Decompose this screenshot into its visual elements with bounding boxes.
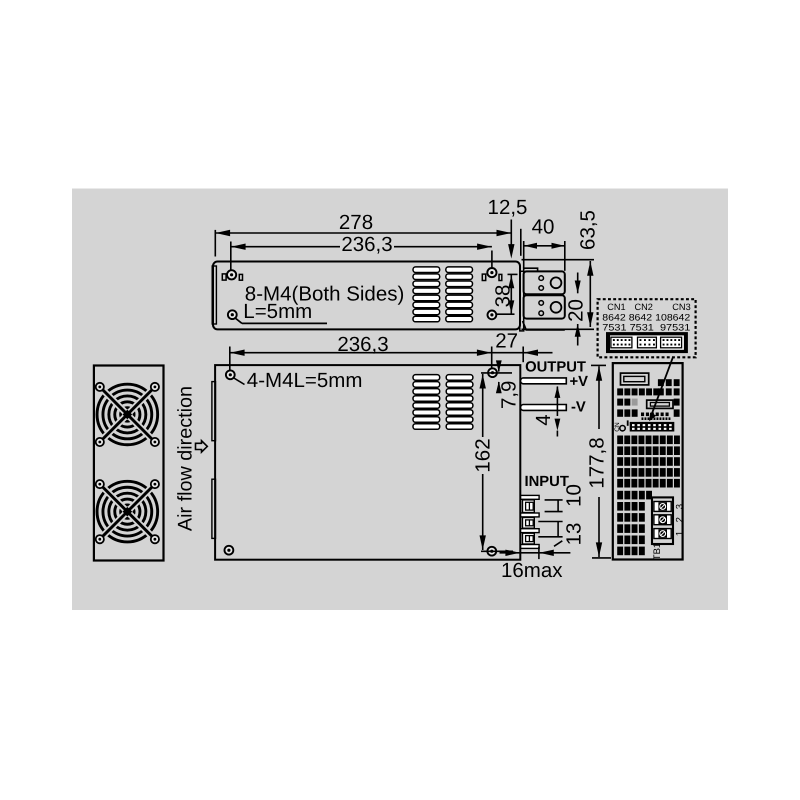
svg-text:63,5: 63,5	[577, 210, 600, 250]
svg-text:4: 4	[532, 414, 555, 425]
svg-text:2: 2	[674, 517, 685, 522]
svg-text:7,9: 7,9	[498, 381, 521, 410]
svg-text:236,3: 236,3	[341, 233, 392, 256]
svg-text:7531 7531 97531: 7531 7531 97531	[602, 322, 690, 333]
svg-text:4-M4L=5mm: 4-M4L=5mm	[247, 369, 363, 392]
svg-text:177,8: 177,8	[586, 437, 609, 488]
svg-text:40: 40	[532, 216, 555, 239]
svg-text:3: 3	[674, 504, 685, 509]
svg-text:278: 278	[339, 211, 373, 234]
svg-text:16max: 16max	[501, 559, 563, 582]
svg-text:162: 162	[472, 438, 495, 472]
svg-text:-V: -V	[571, 400, 586, 416]
svg-text:TB1: TB1	[652, 543, 663, 560]
svg-text:12,5: 12,5	[488, 196, 528, 219]
svg-text:13: 13	[563, 523, 586, 546]
svg-text:20: 20	[565, 299, 588, 322]
svg-text:8642 8642 108642: 8642 8642 108642	[602, 311, 690, 322]
svg-text:L=5mm: L=5mm	[243, 300, 312, 323]
svg-text:27: 27	[495, 329, 518, 352]
svg-text:+V: +V	[570, 374, 589, 390]
svg-text:10: 10	[563, 484, 586, 507]
svg-text:CN: CN	[614, 422, 621, 432]
svg-text:Air flow direction: Air flow direction	[175, 386, 197, 531]
svg-text:1: 1	[674, 531, 685, 536]
